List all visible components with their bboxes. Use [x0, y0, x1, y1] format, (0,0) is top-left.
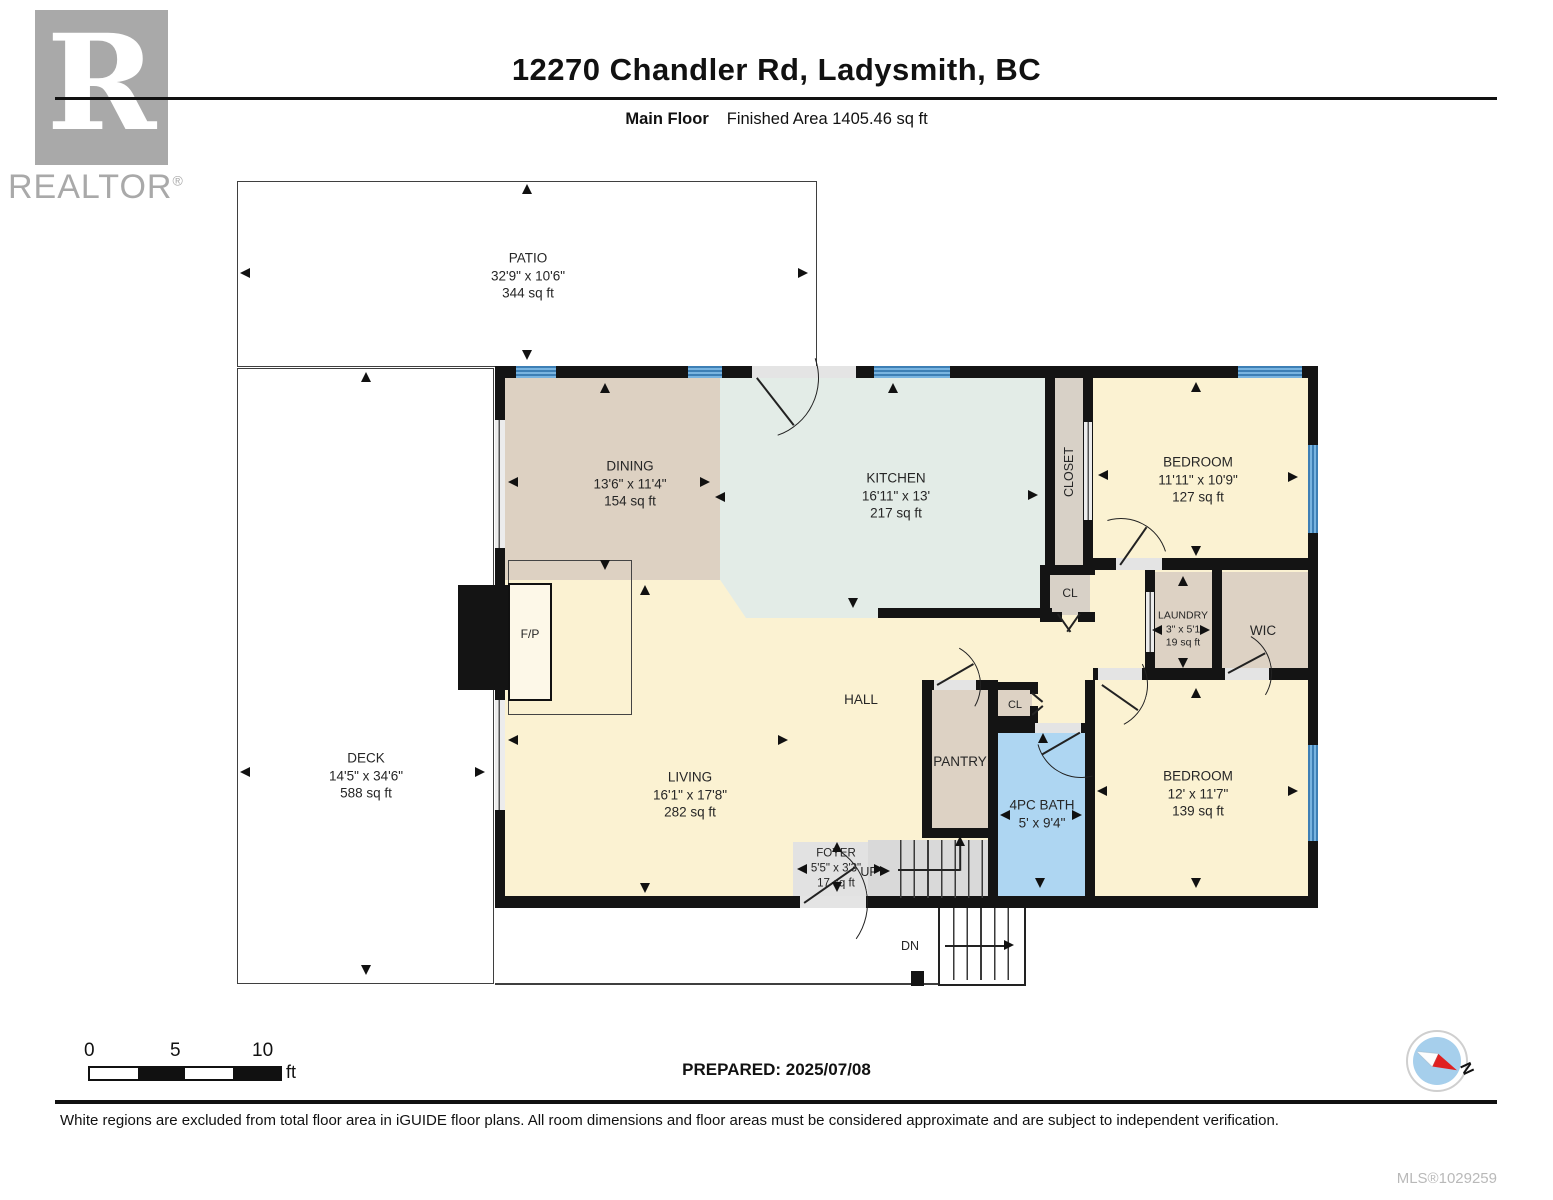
wall-closet-left [1045, 378, 1055, 575]
dimension-arrow [640, 883, 650, 893]
dimension-arrow [600, 383, 610, 393]
compass-icon [1406, 1030, 1468, 1092]
room-label-bath: 4PC BATH5' x 9'4" [1009, 796, 1074, 831]
dimension-arrow [1098, 470, 1108, 480]
room-label-dining: DINING13'6" x 11'4"154 sq ft [593, 458, 666, 511]
room-label-closet: CLOSET [1061, 447, 1077, 497]
dimension-arrow [1200, 625, 1210, 635]
dimension-arrow [1072, 810, 1082, 820]
dimension-arrow [600, 560, 610, 570]
dimension-arrow [1288, 472, 1298, 482]
room-label-patio: PATIO32'9" x 10'6"344 sq ft [491, 250, 565, 303]
dimension-arrow [848, 598, 858, 608]
dimension-arrow [361, 965, 371, 975]
wall-kitchen-bottom [878, 608, 1052, 618]
dimension-arrow [361, 372, 371, 382]
dimension-arrow [1288, 786, 1298, 796]
dimension-arrow [1191, 546, 1201, 556]
scale-tick-5: 5 [170, 1040, 181, 1062]
window-bedroom1-top [1238, 366, 1302, 378]
fireplace-label: F/P [521, 627, 540, 643]
slider-living-deck [495, 700, 505, 810]
scale-bar [88, 1066, 282, 1081]
stairs-down-arrowhead [1004, 940, 1014, 950]
dimension-arrow [240, 767, 250, 777]
disclaimer-text: White regions are excluded from total fl… [60, 1112, 1279, 1129]
window-kitchen [874, 366, 950, 378]
room-label-small-closet: CL [1008, 698, 1022, 712]
dimension-arrow [1191, 878, 1201, 888]
room-label-hall-closet: CL [1062, 586, 1077, 602]
window-bedroom2-right [1308, 745, 1318, 841]
room-label-kitchen: KITCHEN16'11" x 13'217 sq ft [862, 470, 930, 523]
dimension-arrow [1178, 658, 1188, 668]
dimension-arrow [240, 268, 250, 278]
dimension-arrow [1191, 688, 1201, 698]
stair-post [911, 971, 924, 986]
room-label-wic: WIC [1250, 622, 1276, 640]
dimension-arrow [508, 477, 518, 487]
dimension-arrow [1038, 733, 1048, 743]
deck-outline [237, 368, 494, 984]
stairs-down-arrow-line [945, 945, 1005, 947]
dimension-arrow [888, 383, 898, 393]
dimension-arrow [522, 184, 532, 194]
dimension-arrow [1191, 382, 1201, 392]
slider-dining-deck [495, 420, 505, 548]
room-label-hall: HALL [844, 691, 878, 709]
room-label-living: LIVING16'1" x 17'8"282 sq ft [653, 769, 727, 822]
room-label-pantry: PANTRY [933, 753, 987, 771]
dimension-arrow [798, 268, 808, 278]
mls-number: MLS®1029259 [1397, 1170, 1497, 1187]
room-label-bedroom2: BEDROOM12' x 11'7"139 sq ft [1163, 768, 1233, 821]
stairs-down-label: DN [901, 938, 919, 954]
stairs-up-arrowhead [955, 836, 965, 846]
window-dining-1 [516, 366, 556, 378]
floor-plan: PATIO32'9" x 10'6"344 sq ft DECK14'5" x … [0, 0, 1553, 1200]
slider-closet [1084, 422, 1092, 520]
dimension-arrow [1178, 576, 1188, 586]
stairs-up-arrow-stem [959, 845, 961, 871]
up-label-arrow [880, 866, 890, 876]
dimension-arrow [778, 735, 788, 745]
window-bedroom1-right [1308, 445, 1318, 533]
dimension-arrow [1028, 490, 1038, 500]
dimension-arrow [475, 767, 485, 777]
dimension-arrow [508, 735, 518, 745]
dimension-arrow [715, 492, 725, 502]
dimension-arrow [1097, 786, 1107, 796]
dimension-arrow [522, 350, 532, 360]
dimension-arrow [1152, 625, 1162, 635]
dimension-arrow [700, 477, 710, 487]
dimension-arrow [1035, 878, 1045, 888]
room-label-bedroom1: BEDROOM11'11" x 10'9"127 sq ft [1158, 454, 1238, 507]
stairs-up-arrow-line [898, 869, 960, 871]
wall-pantry-right [988, 680, 998, 838]
walkway-line [495, 983, 938, 985]
footer-divider [55, 1100, 1497, 1104]
dimension-arrow [797, 864, 807, 874]
dimension-arrow [640, 585, 650, 595]
dimension-arrow [1000, 810, 1010, 820]
dimension-arrow [832, 882, 842, 892]
room-label-deck: DECK14'5" x 34'6"588 sq ft [329, 750, 403, 803]
scale-tick-0: 0 [84, 1040, 95, 1062]
scale-tick-10: 10 [252, 1040, 273, 1062]
dimension-arrow [832, 842, 842, 852]
